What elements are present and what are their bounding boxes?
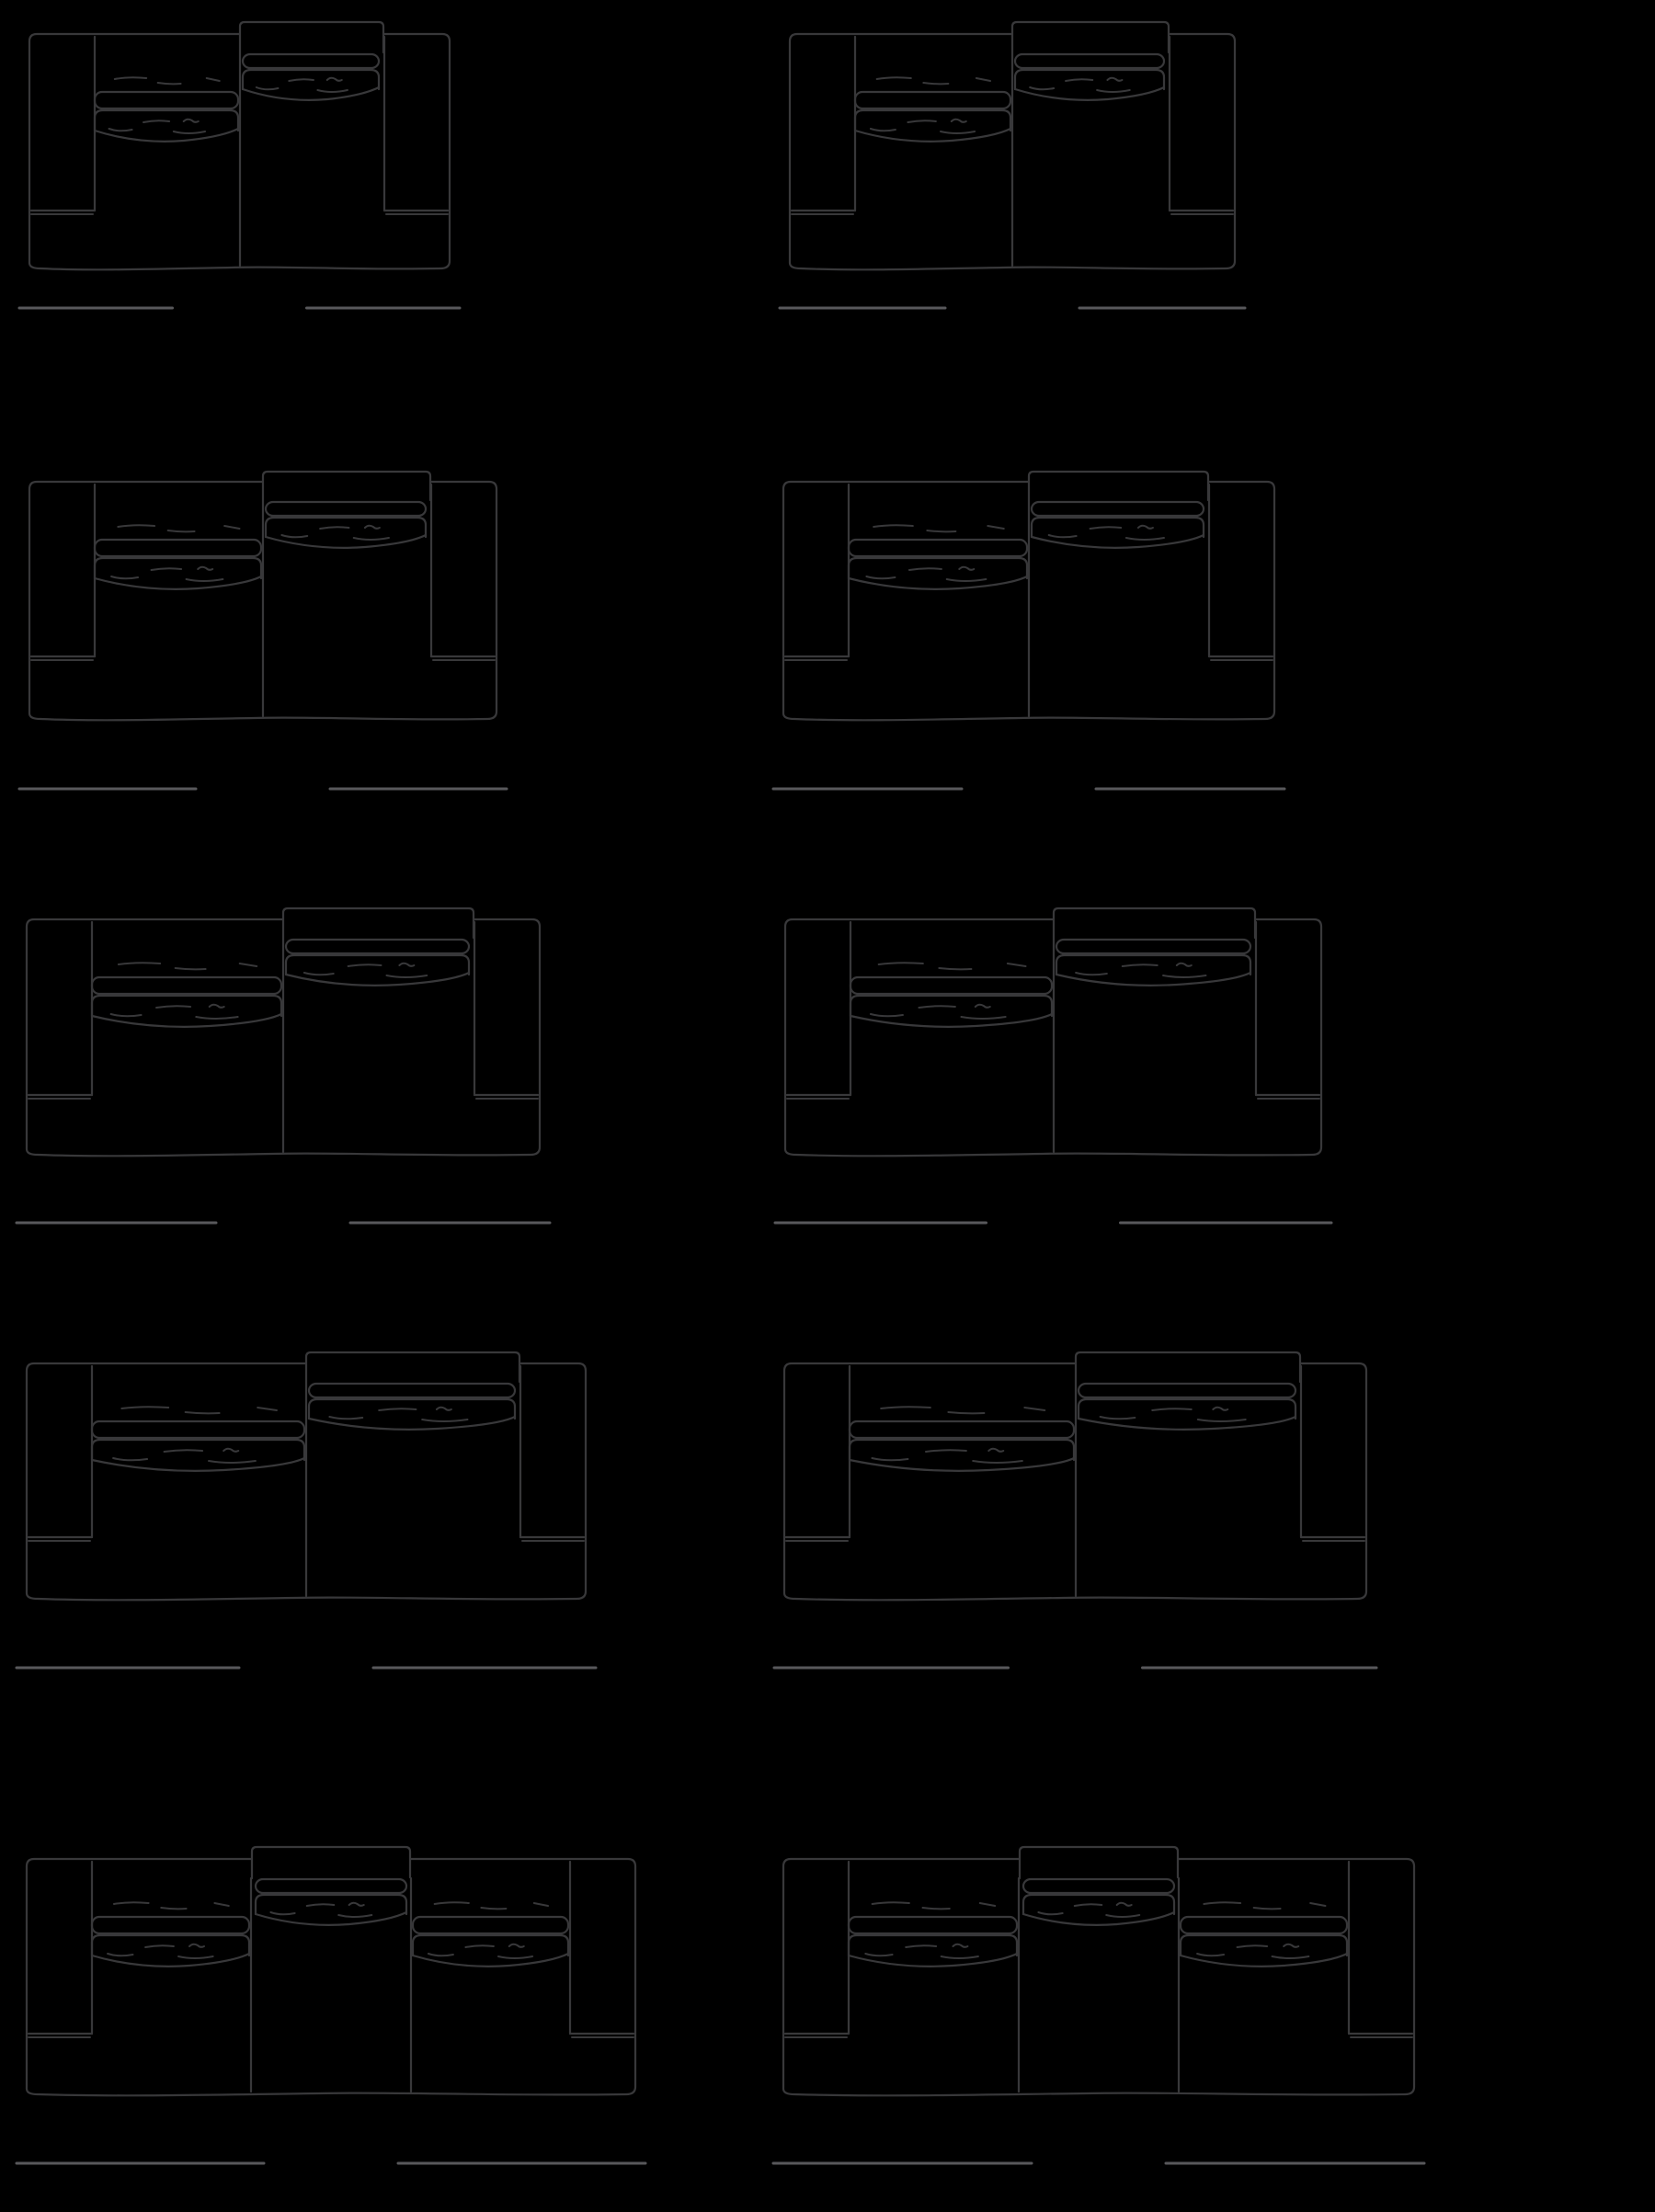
- backrest-raised-rect: [1020, 1847, 1178, 1878]
- right-seat-cushion-mark-2: [379, 1408, 416, 1410]
- left-seat-deck-mark-3: [257, 1408, 277, 1410]
- left-seat-deck-mark-1: [118, 525, 154, 527]
- left-seat-cushion-mark-1: [871, 1014, 903, 1016]
- backrest-raised-rect: [1054, 908, 1255, 939]
- left-seat-deck-mark-2: [161, 1908, 186, 1909]
- right-seat-cushion-mark-3: [1097, 90, 1130, 92]
- center-seat-cushion-squiggle: [1117, 1903, 1132, 1906]
- right-seat-deck-mark-3: [1310, 1903, 1325, 1906]
- right-seat-cushion-mark-1: [1101, 1417, 1136, 1419]
- right-seat-deck-mark-2: [1254, 1908, 1281, 1909]
- right-seat-cushion-squiggle: [399, 963, 414, 966]
- backrest-raised-rect: [263, 472, 430, 501]
- right-seat-cushion-mark-1: [1076, 973, 1107, 975]
- sofa-top-view-row2-right: [773, 472, 1284, 789]
- left-seat-deck-mark-2: [923, 83, 948, 84]
- right-seat-cushion-mark-3: [1126, 538, 1164, 540]
- left-seat-cushion-mark-2: [143, 120, 169, 122]
- left-seat-cushion-mark-2: [909, 568, 942, 570]
- right-seat-back-cushion: [1056, 940, 1250, 953]
- right-seat-cushion-mark-2: [348, 964, 382, 966]
- right-seat-back-cushion: [309, 1384, 515, 1397]
- left-seat-deck-mark-1: [881, 1407, 930, 1408]
- right-seat-cushion-mark-1: [1049, 535, 1077, 537]
- left-seat-cushion-mark-2: [919, 1006, 954, 1008]
- sofa-top-view-row1-left: [19, 22, 460, 308]
- sofa-top-view-row1-right: [780, 22, 1245, 308]
- right-seat-cushion-mark-1: [257, 87, 279, 89]
- backrest-raised-rect: [306, 1352, 519, 1383]
- backrest-raised-rect: [1076, 1352, 1300, 1383]
- center-seat-cushion-mark-1: [1038, 1912, 1062, 1914]
- right-seat-cushion-mark-2: [465, 1945, 493, 1947]
- right-seat-cushion-mark-3: [1198, 1420, 1246, 1421]
- sofa-top-view-row5-left: [17, 1847, 645, 2163]
- right-seat-cushion-squiggle: [437, 1408, 451, 1410]
- left-seat-deck-mark-1: [119, 963, 160, 964]
- left-seat-cushion-squiggle: [953, 1944, 967, 1947]
- right-seat-cushion-mark-2: [1238, 1945, 1268, 1947]
- left-seat-deck-mark-2: [168, 530, 195, 531]
- right-seat-cushion-mark-2: [1123, 964, 1158, 966]
- left-seat-deck-mark-2: [923, 1908, 950, 1909]
- left-seat-deck-mark-1: [879, 963, 923, 964]
- right-seat-deck-mark-3: [534, 1903, 548, 1906]
- left-seat-cushion-mark-3: [961, 1017, 1005, 1019]
- right-seat-cushion-squiggle: [1107, 78, 1122, 81]
- left-seat-cushion-mark-3: [196, 1017, 237, 1019]
- sofa-top-view-row5-right: [773, 1847, 1424, 2163]
- left-seat-deck-mark-1: [877, 77, 911, 79]
- center-seat-back-cushion: [1023, 1879, 1174, 1893]
- left-seat-cushion-mark-1: [866, 576, 895, 578]
- left-seat-cushion-squiggle: [210, 1005, 224, 1008]
- sofa-line-drawings: [0, 0, 1655, 2212]
- backrest-raised-rect: [1029, 472, 1208, 501]
- left-seat-deck-mark-1: [114, 1902, 149, 1904]
- sofa-top-view-row3-left: [17, 908, 550, 1223]
- left-seat-cushion-mark-3: [973, 1461, 1022, 1463]
- center-seat-cushion-mark-2: [307, 1904, 335, 1906]
- backrest-raised-rect: [240, 22, 383, 53]
- left-seat-cushion-mark-1: [109, 129, 132, 131]
- left-seat-deck-mark-3: [207, 78, 220, 81]
- left-seat-deck-mark-3: [224, 526, 239, 529]
- left-seat-cushion-squiggle: [988, 1449, 1003, 1452]
- left-seat-cushion-mark-3: [942, 1956, 978, 1958]
- right-seat-back-cushion: [1181, 1917, 1347, 1933]
- left-seat-cushion-mark-2: [156, 1006, 190, 1008]
- right-seat-cushion-mark-3: [1163, 975, 1205, 977]
- right-seat-deck-mark-2: [481, 1908, 506, 1909]
- right-seat-cushion-mark-2: [1066, 79, 1092, 81]
- left-seat-cushion-squiggle: [198, 567, 212, 570]
- right-seat-cushion-mark-3: [1273, 1956, 1309, 1958]
- right-seat-cushion-squiggle: [509, 1944, 524, 1947]
- left-seat-cushion-mark-3: [174, 131, 205, 133]
- right-seat-cushion-mark-1: [281, 535, 307, 537]
- backrest-raised-rect: [283, 908, 474, 939]
- left-seat-deck-mark-1: [121, 1407, 168, 1408]
- left-seat-back-cushion: [95, 540, 261, 556]
- right-seat-cushion-mark-1: [1030, 87, 1054, 89]
- left-seat-deck-mark-2: [158, 83, 181, 84]
- left-seat-cushion-mark-3: [209, 1461, 256, 1463]
- center-seat-back-cushion: [256, 1879, 406, 1893]
- left-seat-cushion-mark-3: [947, 579, 987, 581]
- right-seat-cushion-mark-1: [329, 1417, 362, 1419]
- left-seat-deck-mark-2: [939, 968, 971, 969]
- left-seat-back-cushion: [855, 92, 1010, 108]
- center-seat-cushion-mark-2: [1075, 1904, 1102, 1906]
- right-seat-cushion-squiggle: [1284, 1944, 1298, 1947]
- left-seat-cushion-squiggle: [976, 1005, 990, 1008]
- right-seat-back-cushion: [286, 940, 469, 953]
- right-seat-back-cushion: [413, 1917, 568, 1933]
- left-seat-deck-mark-2: [186, 1412, 220, 1413]
- right-seat-cushion-mark-3: [498, 1956, 532, 1958]
- right-seat-cushion-mark-3: [422, 1420, 467, 1421]
- left-seat-cushion-squiggle: [223, 1449, 238, 1452]
- left-seat-deck-mark-2: [927, 530, 955, 531]
- left-seat-deck-mark-3: [214, 1903, 228, 1906]
- left-seat-cushion-squiggle: [952, 120, 966, 122]
- left-seat-deck-mark-3: [987, 526, 1003, 529]
- center-seat-cushion-mark-1: [270, 1912, 294, 1914]
- left-seat-deck-mark-3: [1008, 963, 1026, 966]
- left-seat-deck-mark-3: [1024, 1408, 1044, 1410]
- left-seat-back-cushion: [92, 1917, 249, 1933]
- left-seat-back-cushion: [850, 977, 1052, 994]
- left-seat-deck-mark-3: [240, 963, 257, 966]
- sofa-top-view-row3-right: [775, 908, 1331, 1223]
- left-seat-cushion-squiggle: [189, 1944, 204, 1947]
- left-seat-back-cushion: [849, 540, 1027, 556]
- right-seat-deck-mark-1: [1204, 1902, 1240, 1904]
- backrest-raised-rect: [252, 1847, 410, 1878]
- left-seat-deck-mark-2: [948, 1412, 984, 1413]
- left-seat-cushion-mark-1: [111, 576, 138, 578]
- left-seat-cushion-mark-1: [108, 1954, 132, 1955]
- catalog-page: [0, 0, 1655, 2212]
- right-seat-cushion-mark-1: [1197, 1954, 1224, 1955]
- left-seat-cushion-mark-2: [906, 1945, 936, 1947]
- left-seat-deck-mark-1: [115, 77, 146, 79]
- right-seat-back-cushion: [1079, 1384, 1295, 1397]
- left-seat-cushion-mark-3: [178, 1956, 213, 1958]
- left-seat-deck-mark-1: [873, 1902, 909, 1904]
- left-seat-back-cushion: [92, 1421, 304, 1438]
- right-seat-cushion-mark-1: [304, 973, 334, 975]
- left-seat-cushion-mark-3: [187, 579, 223, 581]
- sofa-top-view-row2-left: [19, 472, 507, 789]
- left-seat-cushion-mark-1: [111, 1014, 142, 1016]
- left-seat-deck-mark-3: [976, 78, 990, 81]
- center-seat-cushion-squiggle: [349, 1903, 364, 1906]
- right-seat-back-cushion: [266, 502, 426, 516]
- left-seat-back-cushion: [92, 977, 281, 994]
- right-seat-back-cushion: [243, 54, 379, 68]
- sofa-top-view-row4-left: [17, 1352, 596, 1668]
- right-seat-cushion-squiggle: [365, 526, 380, 529]
- right-seat-cushion-squiggle: [327, 78, 342, 81]
- right-seat-cushion-mark-3: [354, 538, 389, 540]
- left-seat-cushion-mark-1: [871, 129, 896, 131]
- left-seat-back-cushion: [95, 92, 238, 108]
- left-seat-cushion-mark-2: [145, 1945, 174, 1947]
- left-seat-back-cushion: [849, 1917, 1017, 1933]
- right-seat-cushion-squiggle: [1213, 1408, 1227, 1410]
- left-seat-cushion-mark-2: [926, 1450, 966, 1452]
- left-seat-back-cushion: [850, 1421, 1074, 1438]
- right-seat-back-cushion: [1032, 502, 1204, 516]
- backrest-raised-rect: [1012, 22, 1169, 53]
- left-seat-deck-mark-2: [176, 968, 206, 969]
- right-seat-cushion-mark-3: [386, 975, 427, 977]
- left-seat-cushion-mark-3: [941, 131, 975, 133]
- right-seat-deck-mark-1: [435, 1902, 469, 1904]
- left-seat-cushion-mark-1: [865, 1954, 892, 1955]
- left-seat-cushion-mark-1: [113, 1458, 147, 1460]
- left-seat-cushion-squiggle: [959, 567, 974, 570]
- center-seat-cushion-mark-3: [1106, 1915, 1139, 1917]
- right-seat-cushion-mark-2: [1090, 527, 1122, 529]
- left-seat-deck-mark-1: [873, 525, 913, 527]
- left-seat-deck-mark-3: [980, 1903, 995, 1906]
- left-seat-cushion-mark-2: [165, 1450, 203, 1452]
- center-seat-cushion-mark-3: [338, 1915, 371, 1917]
- right-seat-cushion-mark-2: [320, 527, 348, 529]
- left-seat-cushion-mark-2: [907, 120, 935, 122]
- right-seat-cushion-mark-3: [317, 90, 348, 92]
- right-seat-cushion-squiggle: [1138, 526, 1153, 529]
- right-seat-cushion-squiggle: [1177, 963, 1192, 966]
- right-seat-back-cushion: [1015, 54, 1164, 68]
- right-seat-cushion-mark-2: [1152, 1408, 1191, 1410]
- left-seat-cushion-squiggle: [184, 120, 199, 122]
- left-seat-cushion-mark-1: [872, 1458, 907, 1460]
- sofa-top-view-row4-right: [774, 1352, 1376, 1668]
- right-seat-cushion-mark-1: [428, 1954, 453, 1955]
- right-seat-cushion-mark-2: [289, 79, 314, 81]
- left-seat-cushion-mark-2: [152, 568, 182, 570]
